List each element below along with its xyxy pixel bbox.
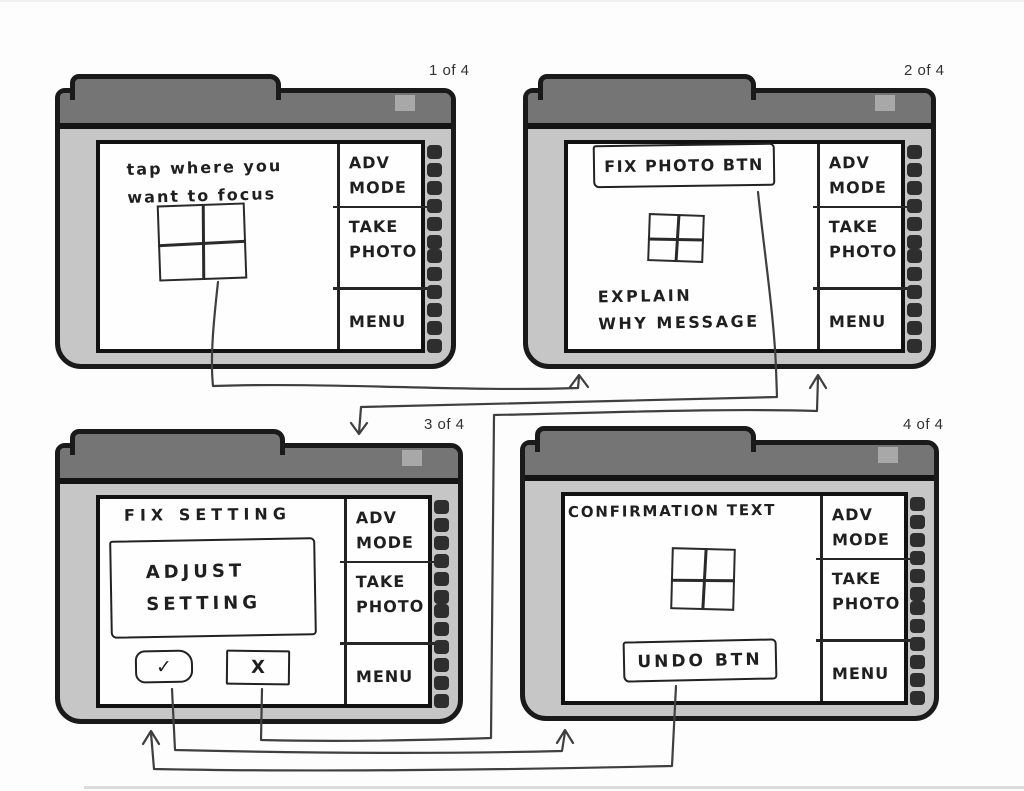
take-photo-button[interactable]: TAKEPHOTO: [340, 208, 421, 290]
top-bar-slot: [402, 450, 422, 466]
focus-grid-icon[interactable]: [157, 202, 248, 281]
device-button-dot: [427, 145, 442, 159]
take-photo-button[interactable]: TAKEPHOTO: [820, 208, 901, 290]
device-button-dot: [907, 339, 922, 353]
device-button-dot: [910, 673, 925, 687]
device-frame-2: FIX PHOTO BTN EXPLAIN WHY MESSAGE ADVMOD…: [523, 88, 936, 369]
device-frame-3: FIX SETTING ADJUST SETTING ✓ X ADVMODE T…: [55, 443, 463, 724]
device-screen: tap where you want to focus ADVMODE TAKE…: [96, 140, 425, 353]
sidebar: ADVMODE TAKEPHOTO MENU: [344, 499, 428, 704]
device-button-dot: [910, 655, 925, 669]
menu-button[interactable]: MENU: [340, 289, 421, 349]
device-button-dot: [434, 518, 449, 532]
device-button-dot: [434, 604, 449, 618]
device-button-dot: [434, 590, 449, 604]
device-button-dot: [907, 217, 922, 231]
device-top-tab: [535, 426, 756, 452]
device-screen: FIX SETTING ADJUST SETTING ✓ X ADVMODE T…: [96, 495, 432, 708]
page-counter: 3 of 4: [424, 416, 465, 433]
device-frame-4: CONFIRMATION TEXT UNDO BTN ADVMODE TAKEP…: [520, 440, 939, 721]
device-button-dot: [910, 619, 925, 633]
device-button-dot: [434, 554, 449, 568]
focus-grid-icon: [647, 213, 705, 263]
explain-why-text: EXPLAIN WHY MESSAGE: [598, 281, 760, 338]
device-button-column: [427, 145, 443, 352]
screen-heading: FIX SETTING: [124, 504, 291, 524]
device-button-dot: [907, 163, 922, 177]
sidebar: ADVMODE TAKEPHOTO MENU: [817, 144, 901, 349]
adjust-setting-dialog: ADJUST SETTING: [109, 537, 317, 639]
device-button-dot: [434, 694, 449, 708]
device-button-dot: [434, 572, 449, 586]
undo-button[interactable]: UNDO BTN: [623, 638, 778, 682]
device-button-dot: [907, 303, 922, 317]
scan-artifact-bottom: [84, 786, 1024, 789]
device-button-dot: [910, 533, 925, 547]
device-button-dot: [434, 500, 449, 514]
viewfinder-area: FIX SETTING ADJUST SETTING ✓ X: [100, 499, 344, 704]
take-photo-button[interactable]: TAKEPHOTO: [823, 560, 904, 642]
device-button-dot: [434, 658, 449, 672]
x-icon: X: [251, 657, 265, 678]
device-button-dot: [910, 691, 925, 705]
device-button-dot: [907, 285, 922, 299]
device-screen: CONFIRMATION TEXT UNDO BTN ADVMODE TAKEP…: [561, 492, 908, 705]
check-icon: ✓: [156, 655, 172, 677]
adv-mode-button[interactable]: ADVMODE: [823, 496, 904, 560]
page-counter: 2 of 4: [904, 62, 945, 79]
sidebar: ADVMODE TAKEPHOTO MENU: [337, 144, 421, 349]
device-button-dot: [434, 676, 449, 690]
viewfinder-area: CONFIRMATION TEXT UNDO BTN: [565, 496, 820, 701]
device-button-dot: [907, 249, 922, 263]
device-button-dot: [907, 199, 922, 213]
adv-mode-button[interactable]: ADVMODE: [820, 144, 901, 208]
device-screen: FIX PHOTO BTN EXPLAIN WHY MESSAGE ADVMOD…: [564, 140, 905, 353]
device-button-dot: [910, 601, 925, 615]
viewfinder-area: FIX PHOTO BTN EXPLAIN WHY MESSAGE: [568, 144, 817, 349]
cancel-button[interactable]: X: [226, 650, 290, 686]
adv-mode-button[interactable]: ADVMODE: [347, 499, 428, 563]
take-photo-button[interactable]: TAKEPHOTO: [347, 563, 428, 645]
device-button-dot: [907, 267, 922, 281]
device-button-dot: [427, 285, 442, 299]
device-button-dot: [427, 249, 442, 263]
fix-photo-button[interactable]: FIX PHOTO BTN: [593, 143, 776, 189]
device-top-tab: [70, 429, 285, 455]
menu-button[interactable]: MENU: [347, 644, 428, 704]
menu-button[interactable]: MENU: [823, 641, 904, 701]
device-button-dot: [427, 267, 442, 281]
device-button-dot: [907, 321, 922, 335]
scan-artifact-top: [0, 0, 1024, 2]
device-button-dot: [910, 587, 925, 601]
device-button-dot: [427, 181, 442, 195]
device-frame-1: tap where you want to focus ADVMODE TAKE…: [55, 88, 456, 369]
focus-grid-icon: [670, 547, 736, 611]
device-top-tab: [538, 74, 756, 100]
device-button-dot: [907, 235, 922, 249]
device-button-dot: [434, 622, 449, 636]
screen-heading: CONFIRMATION TEXT: [568, 501, 776, 521]
device-button-dot: [910, 497, 925, 511]
device-button-dot: [910, 637, 925, 651]
device-button-dot: [434, 536, 449, 550]
device-button-dot: [907, 145, 922, 159]
wireframe-page: 1 of 4 2 of 4 3 of 4 4 of 4 tap where yo…: [0, 0, 1024, 791]
device-button-dot: [427, 303, 442, 317]
device-button-dot: [427, 163, 442, 177]
adv-mode-button[interactable]: ADVMODE: [340, 144, 421, 208]
device-top-tab: [70, 74, 281, 100]
page-counter: 4 of 4: [903, 416, 944, 433]
device-button-column: [907, 145, 923, 352]
device-button-column: [434, 500, 450, 707]
device-button-dot: [427, 235, 442, 249]
device-button-dot: [910, 569, 925, 583]
confirm-button[interactable]: ✓: [135, 649, 194, 683]
top-bar-slot: [875, 95, 895, 111]
device-button-dot: [907, 181, 922, 195]
device-button-dot: [910, 515, 925, 529]
device-button-dot: [427, 321, 442, 335]
device-button-dot: [427, 199, 442, 213]
device-button-dot: [910, 551, 925, 565]
top-bar-slot: [878, 447, 898, 463]
device-button-dot: [427, 339, 442, 353]
device-button-dot: [434, 640, 449, 654]
top-bar-slot: [395, 95, 415, 111]
page-counter: 1 of 4: [429, 62, 470, 79]
viewfinder-area: tap where you want to focus: [100, 144, 337, 349]
sidebar: ADVMODE TAKEPHOTO MENU: [820, 496, 904, 701]
menu-button[interactable]: MENU: [820, 289, 901, 349]
device-button-dot: [427, 217, 442, 231]
device-button-column: [910, 497, 926, 704]
